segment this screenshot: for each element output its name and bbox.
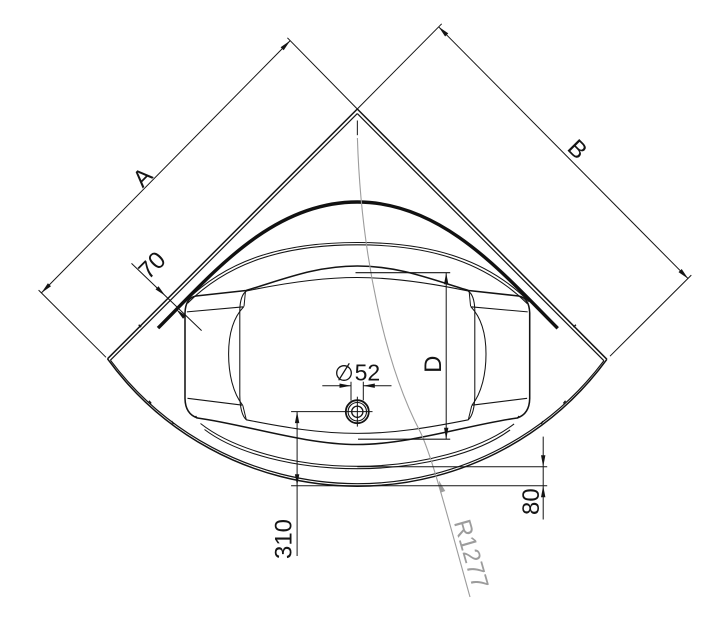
svg-text:52: 52 <box>355 360 381 386</box>
svg-text:310: 310 <box>271 519 298 559</box>
svg-text:D: D <box>420 356 447 373</box>
svg-text:80: 80 <box>518 488 545 515</box>
